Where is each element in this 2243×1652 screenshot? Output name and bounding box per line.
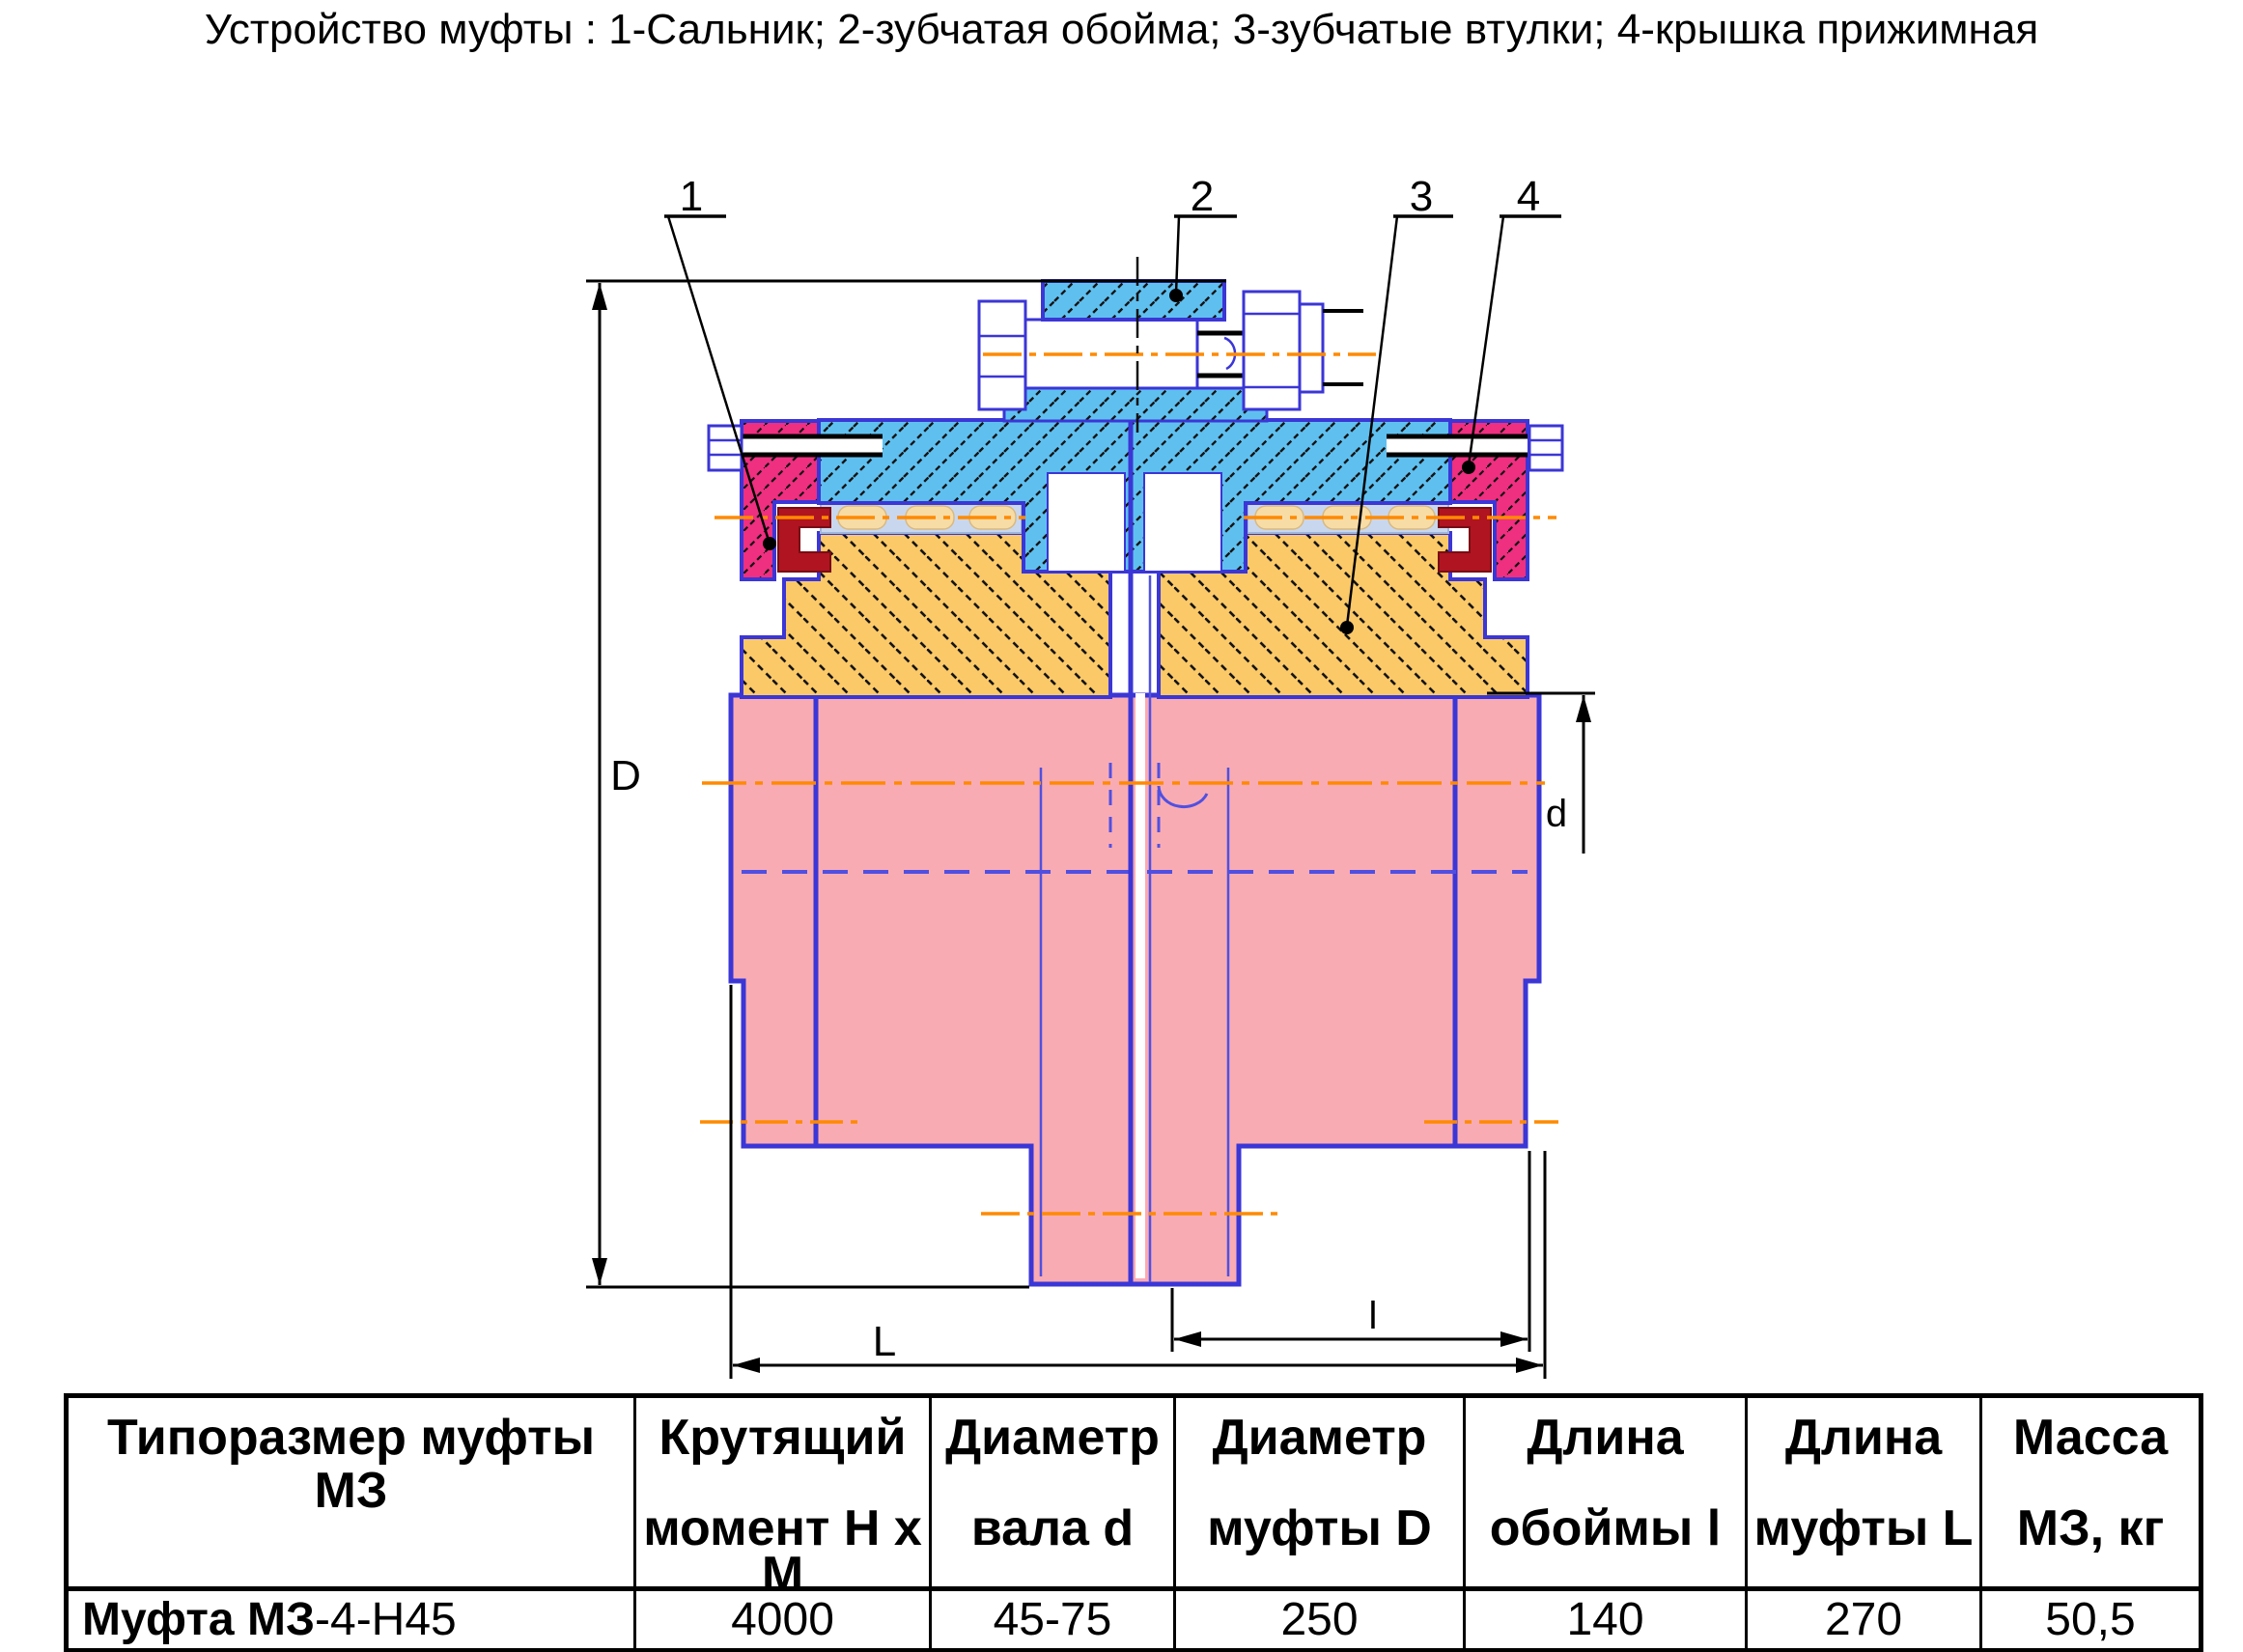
header-torque-line1: Крутящий: [636, 1412, 929, 1465]
table-header-row: Типоразмер муфты МЗ Крутящий момент Н х …: [67, 1396, 2201, 1589]
header-sleeve-l: Длина обоймы l: [1465, 1396, 1747, 1589]
header-mass-line1: Масса: [1982, 1412, 2199, 1465]
header-torque-line2: момент Н х М: [636, 1506, 929, 1599]
header-coupling-L: Длина муфты L: [1747, 1396, 1981, 1589]
dim-D-arrow-top: [592, 283, 607, 310]
cell-type: Муфта МЗ-4-Н45: [67, 1589, 635, 1651]
header-sleeve-l-line1: Длина: [1466, 1412, 1745, 1465]
leader-4-dot: [1462, 461, 1475, 474]
dim-L-arrow-left: [733, 1358, 760, 1373]
header-type-line1: Типоразмер муфты МЗ: [69, 1412, 633, 1517]
cell-mass: 50,5: [1981, 1589, 2201, 1651]
header-torque: Крутящий момент Н х М: [635, 1396, 931, 1589]
cell-coupling-L: 270: [1747, 1589, 1981, 1651]
catalog-page: Устройство муфты : 1-Сальник; 2-зубчатая…: [0, 0, 2243, 1652]
cell-shaft-d: 45-75: [931, 1589, 1175, 1651]
leader-2-dot: [1169, 289, 1183, 302]
part-label-1: 1: [680, 173, 703, 220]
nut-right: [1244, 292, 1300, 409]
dim-D-arrow-bottom: [592, 1258, 607, 1285]
cell-torque: 4000: [635, 1589, 931, 1651]
coupling-name-rest: -4-Н45: [315, 1594, 457, 1645]
header-coupling-D: Диаметр муфты D: [1175, 1396, 1465, 1589]
part-label-3: 3: [1410, 173, 1433, 220]
flange-base: [1004, 388, 1267, 421]
washer-right: [1300, 304, 1323, 392]
header-type: Типоразмер муфты МЗ: [67, 1396, 635, 1589]
bolt-head: [1043, 281, 1224, 320]
dim-l-label: l: [1369, 1295, 1378, 1337]
header-coupling-L-line2: муфты L: [1748, 1506, 1979, 1553]
dim-l-arrow-right: [1500, 1331, 1528, 1347]
sleeve-bore-left: [1048, 473, 1125, 572]
header-shaft-d-line2: вала d: [932, 1506, 1173, 1553]
part-label-4: 4: [1517, 173, 1540, 220]
cell-sleeve-l: 140: [1465, 1589, 1747, 1651]
cap-screw-head-left: [709, 426, 742, 470]
table-data-row: Муфта МЗ-4-Н45 4000 45-75 250 140 270 50…: [67, 1589, 2201, 1651]
dim-d-arrow: [1576, 695, 1591, 722]
cap-screw-head-right: [1529, 426, 1562, 470]
header-mass: Масса МЗ, кг: [1981, 1396, 2201, 1589]
header-coupling-D-line1: Диаметр: [1176, 1412, 1463, 1465]
center-gap: [1136, 693, 1145, 1278]
spec-table: Типоразмер муфты МЗ Крутящий момент Н х …: [64, 1393, 2203, 1652]
leader-1-dot: [763, 537, 776, 550]
dim-D-label: D: [610, 752, 641, 799]
header-coupling-L-line1: Длина: [1748, 1412, 1979, 1465]
sleeve-bore-right: [1144, 473, 1221, 572]
part-label-2: 2: [1191, 173, 1214, 220]
leader-3-dot: [1340, 621, 1354, 634]
dim-l-arrow-left: [1174, 1331, 1201, 1347]
header-mass-line2: МЗ, кг: [1982, 1506, 2199, 1553]
dim-L-label: L: [873, 1318, 896, 1365]
dim-d-label: d: [1546, 793, 1567, 835]
coupling-name-bold: Муфта МЗ: [82, 1594, 315, 1645]
leader-1: [668, 216, 770, 544]
dim-L-arrow-right: [1516, 1358, 1543, 1373]
header-shaft-d-line1: Диаметр: [932, 1412, 1173, 1465]
header-shaft-d: Диаметр вала d: [931, 1396, 1175, 1589]
header-coupling-D-line2: муфты D: [1176, 1506, 1463, 1553]
header-sleeve-l-line2: обоймы l: [1466, 1506, 1745, 1553]
cell-coupling-D: 250: [1175, 1589, 1465, 1651]
